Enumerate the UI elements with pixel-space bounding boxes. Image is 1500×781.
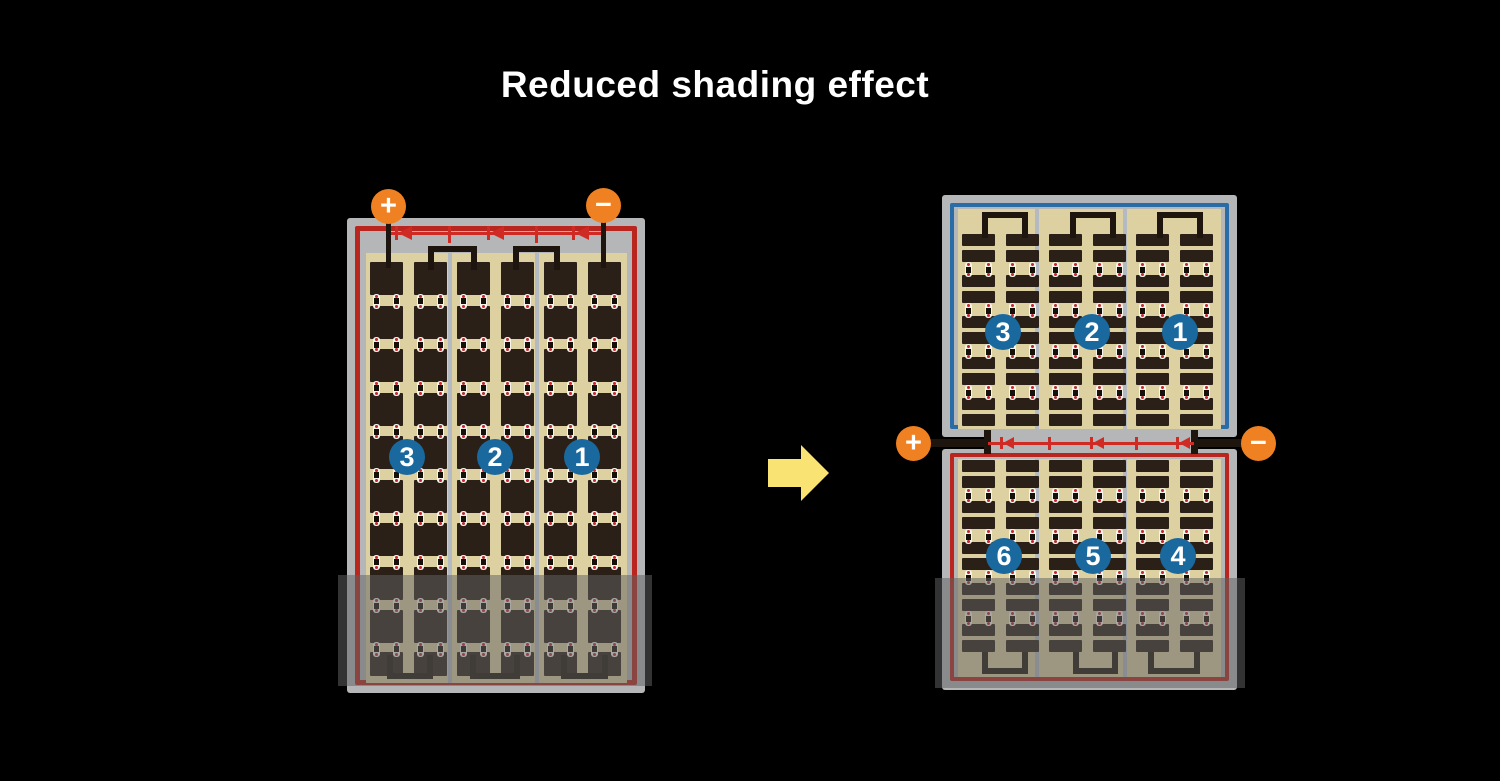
solar-cell: [1093, 414, 1126, 426]
bypass-diode-icon: [1176, 437, 1190, 449]
cell-connector: [611, 468, 618, 483]
cell-connector: [547, 294, 554, 309]
solar-cell: [1136, 460, 1169, 472]
cell-connector: [1159, 344, 1166, 359]
diode-tick: [1048, 437, 1051, 450]
diagram-canvas: Reduced shading effect 3 2 1 + − 3 2 1 +…: [0, 0, 1500, 781]
cell-connector: [504, 294, 511, 309]
cell-connector: [1052, 385, 1059, 400]
string-number: 3: [985, 314, 1021, 350]
cell-connector: [547, 555, 554, 570]
cell-connector: [1203, 488, 1210, 503]
solar-cell: [588, 306, 621, 339]
cell-connector: [1029, 303, 1036, 318]
solar-cell: [1180, 460, 1213, 472]
cell-connector: [524, 424, 531, 439]
string-number: 2: [1074, 314, 1110, 350]
solar-cell: [1093, 291, 1126, 303]
cell-connector: [1072, 303, 1079, 318]
diode-tick: [1135, 437, 1138, 450]
cell-connector: [965, 344, 972, 359]
cell-connector: [1096, 262, 1103, 277]
cell-connector: [1159, 262, 1166, 277]
cell-connector: [611, 294, 618, 309]
solar-cell: [1136, 414, 1169, 426]
solar-cell: [457, 523, 490, 556]
solar-cell: [1180, 476, 1213, 488]
solar-cell: [544, 306, 577, 339]
cell-connector: [524, 511, 531, 526]
bypass-diode-icon: [395, 226, 412, 240]
solar-cell: [1049, 517, 1082, 529]
cell-connector: [611, 555, 618, 570]
plus-terminal-icon: +: [896, 426, 931, 461]
solar-cell: [1093, 460, 1126, 472]
plus-terminal-wire: [930, 439, 988, 447]
string-connector-top: [1157, 212, 1203, 238]
solar-cell: [370, 480, 403, 513]
solar-cell: [1006, 373, 1039, 385]
cell-connector: [437, 555, 444, 570]
cell-connector: [460, 381, 467, 396]
cell-connector: [524, 381, 531, 396]
cell-connector: [985, 385, 992, 400]
solar-cell: [588, 349, 621, 382]
cell-connector: [1072, 344, 1079, 359]
solar-cell: [1136, 250, 1169, 262]
cell-connector: [1029, 385, 1036, 400]
cell-connector: [524, 555, 531, 570]
solar-cell: [962, 291, 995, 303]
cell-connector: [393, 381, 400, 396]
string-connector-top: [1070, 212, 1116, 238]
cell-connector: [524, 468, 531, 483]
cell-connector: [1052, 262, 1059, 277]
solar-cell: [544, 393, 577, 426]
cell-connector: [393, 424, 400, 439]
cell-connector: [524, 337, 531, 352]
cell-connector: [547, 381, 554, 396]
cell-connector: [1183, 262, 1190, 277]
cell-connector: [1183, 488, 1190, 503]
transform-arrow-icon: [768, 459, 801, 487]
solar-cell: [1006, 517, 1039, 529]
solar-cell: [1006, 460, 1039, 472]
solar-cell: [501, 480, 534, 513]
solar-cell: [544, 480, 577, 513]
solar-cell: [414, 523, 447, 556]
string-number: 1: [1162, 314, 1198, 350]
bypass-diode-icon: [572, 226, 589, 240]
cell-connector: [460, 337, 467, 352]
cell-connector: [1029, 529, 1036, 544]
cell-connector: [393, 337, 400, 352]
cell-connector: [393, 511, 400, 526]
cell-connector: [547, 424, 554, 439]
cell-connector: [417, 511, 424, 526]
cell-connector: [1139, 344, 1146, 359]
solar-cell: [588, 480, 621, 513]
cell-connector: [611, 511, 618, 526]
plus-terminal-icon: +: [371, 189, 406, 224]
string-number: 3: [389, 439, 425, 475]
cell-connector: [1116, 262, 1123, 277]
solar-cell: [370, 393, 403, 426]
cell-connector: [1116, 303, 1123, 318]
cell-connector: [567, 555, 574, 570]
shading-overlay: [935, 578, 1245, 688]
transform-arrow-icon: [801, 445, 829, 501]
cell-connector: [1052, 344, 1059, 359]
cell-connector: [460, 294, 467, 309]
cell-connector: [1072, 529, 1079, 544]
cell-connector: [373, 381, 380, 396]
cell-connector: [1139, 385, 1146, 400]
cell-connector: [611, 424, 618, 439]
cell-connector: [547, 511, 554, 526]
string-connector-top: [428, 246, 477, 270]
solar-cell: [370, 523, 403, 556]
cell-connector: [1072, 385, 1079, 400]
solar-cell: [414, 480, 447, 513]
cell-connector: [437, 468, 444, 483]
solar-cell: [1006, 414, 1039, 426]
cell-connector: [1139, 529, 1146, 544]
solar-cell: [1180, 250, 1213, 262]
string-number: 6: [986, 538, 1022, 574]
string-number: 1: [564, 439, 600, 475]
cell-connector: [985, 303, 992, 318]
solar-cell: [1049, 476, 1082, 488]
cell-connector: [965, 529, 972, 544]
cell-connector: [1203, 344, 1210, 359]
cell-connector: [1096, 385, 1103, 400]
cell-connector: [1139, 262, 1146, 277]
shading-overlay: [338, 575, 652, 686]
cell-connector: [373, 294, 380, 309]
cell-connector: [1203, 303, 1210, 318]
cell-connector: [611, 337, 618, 352]
cell-connector: [373, 511, 380, 526]
cell-connector: [504, 555, 511, 570]
solar-cell: [457, 480, 490, 513]
cell-connector: [437, 337, 444, 352]
cell-connector: [437, 294, 444, 309]
string-number: 4: [1160, 538, 1196, 574]
cell-connector: [1052, 303, 1059, 318]
solar-cell: [1136, 373, 1169, 385]
bypass-diode-icon: [1090, 437, 1104, 449]
cell-connector: [1052, 488, 1059, 503]
cell-connector: [504, 424, 511, 439]
cell-connector: [480, 555, 487, 570]
cell-connector: [480, 337, 487, 352]
cell-connector: [591, 511, 598, 526]
cell-connector: [591, 294, 598, 309]
cell-connector: [1203, 385, 1210, 400]
cell-connector: [373, 468, 380, 483]
solar-cell: [1006, 250, 1039, 262]
solar-cell: [1180, 414, 1213, 426]
solar-cell: [1093, 373, 1126, 385]
cell-connector: [567, 294, 574, 309]
solar-cell: [457, 306, 490, 339]
cell-connector: [373, 424, 380, 439]
minus-terminal-icon: −: [1241, 426, 1276, 461]
solar-cell: [1136, 476, 1169, 488]
solar-cell: [588, 523, 621, 556]
solar-cell: [501, 306, 534, 339]
cell-connector: [965, 488, 972, 503]
cell-connector: [1203, 529, 1210, 544]
cell-connector: [1009, 385, 1016, 400]
bypass-diode-icon: [1000, 437, 1014, 449]
cell-connector: [965, 385, 972, 400]
solar-cell: [1049, 373, 1082, 385]
solar-cell: [1049, 250, 1082, 262]
cell-connector: [524, 294, 531, 309]
cell-connector: [417, 555, 424, 570]
cell-connector: [1139, 303, 1146, 318]
solar-cell: [457, 393, 490, 426]
cell-connector: [417, 424, 424, 439]
cell-connector: [1116, 385, 1123, 400]
cell-connector: [460, 424, 467, 439]
cell-connector: [480, 424, 487, 439]
solar-cell: [1136, 517, 1169, 529]
cell-connector: [985, 344, 992, 359]
cell-connector: [437, 381, 444, 396]
cell-connector: [1096, 488, 1103, 503]
cell-connector: [965, 303, 972, 318]
cell-connector: [1029, 262, 1036, 277]
solar-cell: [1180, 291, 1213, 303]
solar-cell: [1006, 476, 1039, 488]
solar-cell: [962, 460, 995, 472]
cell-connector: [393, 555, 400, 570]
cell-connector: [1139, 488, 1146, 503]
cell-connector: [460, 511, 467, 526]
cell-connector: [460, 555, 467, 570]
solar-cell: [501, 393, 534, 426]
cell-connector: [985, 488, 992, 503]
diode-tick: [535, 226, 538, 243]
cell-connector: [1159, 303, 1166, 318]
solar-cell: [414, 393, 447, 426]
string-number: 2: [477, 439, 513, 475]
cell-connector: [1072, 262, 1079, 277]
solar-cell: [501, 523, 534, 556]
cell-connector: [567, 424, 574, 439]
cell-connector: [480, 294, 487, 309]
solar-cell: [1093, 250, 1126, 262]
cell-connector: [417, 294, 424, 309]
solar-cell: [370, 349, 403, 382]
cell-connector: [1029, 344, 1036, 359]
cell-connector: [373, 555, 380, 570]
cell-connector: [591, 424, 598, 439]
solar-cell: [544, 349, 577, 382]
solar-cell: [370, 306, 403, 339]
cell-connector: [547, 337, 554, 352]
solar-cell: [1093, 476, 1126, 488]
bypass-diode-icon: [487, 226, 504, 240]
solar-cell: [414, 349, 447, 382]
cell-connector: [1203, 262, 1210, 277]
cell-connector: [965, 262, 972, 277]
cell-connector: [1052, 529, 1059, 544]
solar-cell: [588, 393, 621, 426]
string-connector-top: [513, 246, 560, 270]
solar-cell: [544, 523, 577, 556]
string-number: 5: [1075, 538, 1111, 574]
solar-cell: [962, 250, 995, 262]
solar-cell: [414, 306, 447, 339]
cell-connector: [373, 337, 380, 352]
minus-terminal-icon: −: [586, 188, 621, 223]
cell-connector: [591, 555, 598, 570]
diode-tick: [448, 226, 451, 243]
cell-connector: [1009, 488, 1016, 503]
cell-connector: [611, 381, 618, 396]
solar-cell: [962, 476, 995, 488]
string-connector-top: [982, 212, 1028, 238]
solar-cell: [1049, 460, 1082, 472]
cell-connector: [1116, 529, 1123, 544]
cell-connector: [460, 468, 467, 483]
solar-cell: [457, 349, 490, 382]
cell-connector: [393, 294, 400, 309]
cell-connector: [480, 511, 487, 526]
solar-cell: [1136, 291, 1169, 303]
cell-connector: [417, 381, 424, 396]
cell-connector: [504, 381, 511, 396]
cell-connector: [437, 424, 444, 439]
cell-connector: [567, 511, 574, 526]
cell-connector: [985, 262, 992, 277]
cell-connector: [1116, 488, 1123, 503]
cell-connector: [567, 337, 574, 352]
cell-connector: [480, 381, 487, 396]
solar-cell: [1006, 291, 1039, 303]
cell-connector: [1009, 262, 1016, 277]
solar-cell: [1093, 517, 1126, 529]
cell-connector: [1072, 488, 1079, 503]
solar-cell: [1180, 373, 1213, 385]
cell-connector: [591, 337, 598, 352]
cell-connector: [1159, 385, 1166, 400]
solar-cell: [1049, 414, 1082, 426]
solar-cell: [962, 414, 995, 426]
cell-connector: [1159, 488, 1166, 503]
cell-connector: [504, 511, 511, 526]
cell-connector: [417, 337, 424, 352]
cell-connector: [437, 511, 444, 526]
cell-connector: [1116, 344, 1123, 359]
solar-cell: [1180, 517, 1213, 529]
solar-cell: [962, 373, 995, 385]
cell-connector: [567, 381, 574, 396]
cell-connector: [504, 337, 511, 352]
cell-connector: [1183, 385, 1190, 400]
cell-connector: [591, 381, 598, 396]
page-title: Reduced shading effect: [0, 64, 1430, 106]
cell-connector: [547, 468, 554, 483]
solar-cell: [962, 517, 995, 529]
solar-cell: [1049, 291, 1082, 303]
solar-cell: [501, 349, 534, 382]
cell-connector: [1029, 488, 1036, 503]
